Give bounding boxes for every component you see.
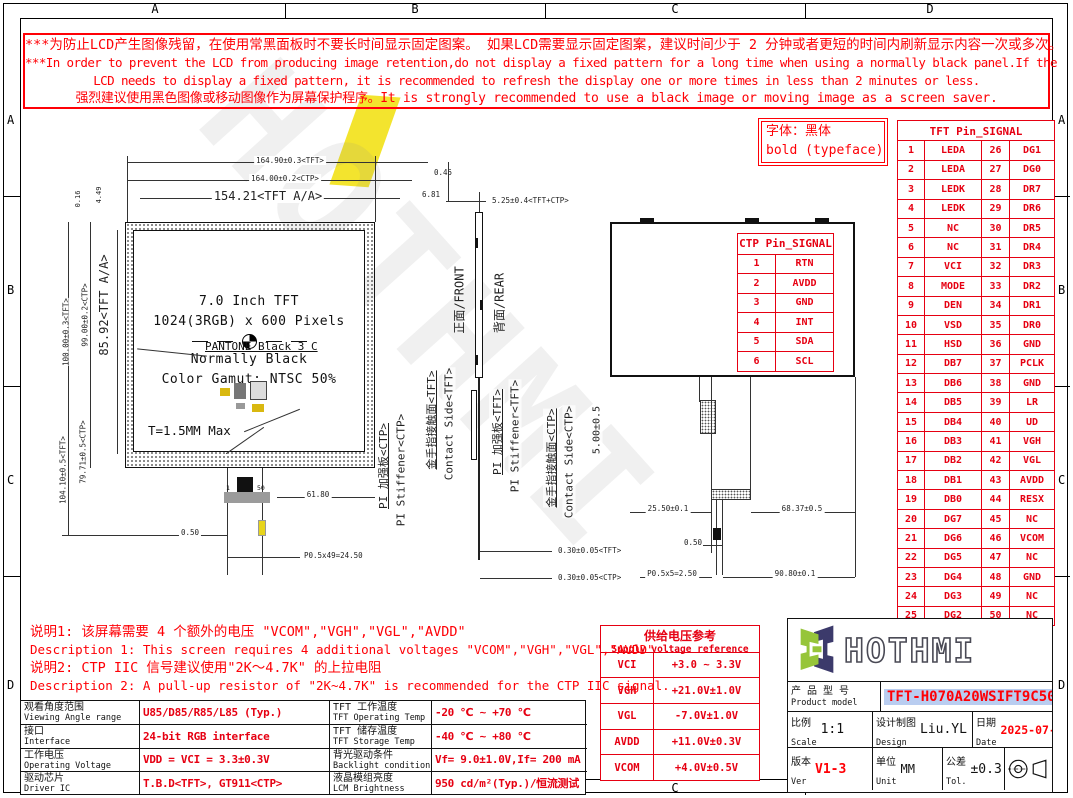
tolerance-label-cn: 公差 xyxy=(946,757,966,768)
pin-number-first: 1 xyxy=(226,484,230,492)
fpc-driver-ic xyxy=(250,381,267,400)
date-label-en: Date xyxy=(976,738,996,748)
zone-letter: A xyxy=(151,2,158,16)
unit-label-cn: 单位 xyxy=(876,757,896,768)
fpc-component xyxy=(220,388,230,396)
dim-label: 6.81 xyxy=(420,190,442,199)
dim-label: 0.45 xyxy=(432,168,454,177)
typeface-note-en: bold (typeface) xyxy=(766,141,884,160)
side-view-stiffener xyxy=(471,390,477,460)
note-1-en: Description 1: This screen requires 4 ad… xyxy=(30,641,670,659)
drawing-sheet: HOTHMI ABCD ABCD ABCD ABCD ***为防止LCD产生图像… xyxy=(0,0,1073,798)
zone-letter: C xyxy=(1058,473,1065,487)
warning-line-en2: LCD needs to display a fixed pattern, it… xyxy=(25,72,1048,90)
panel-size-label: 7.0 Inch TFT xyxy=(199,292,299,312)
dim-label: 68.37±0.5 xyxy=(780,504,825,513)
tolerance-value: ±0.3 xyxy=(970,762,1001,777)
logo-text: HOTHMI xyxy=(844,631,975,670)
side-view-stack xyxy=(475,212,483,378)
zone-letter: D xyxy=(1058,678,1065,692)
date-label-cn: 日期 xyxy=(976,718,996,729)
side-front-label: 正面/FRONT xyxy=(451,266,468,333)
side-label-pi-tft-cn: PI 加强板<TFT> xyxy=(489,389,505,475)
note-1-cn: 说明1: 该屏幕需要 4 个额外的电压 "VCOM","VGH","VGL","… xyxy=(30,623,670,641)
dim-label: 0.30±0.05<CTP> xyxy=(556,573,623,582)
title-block: HOTHMI 产 品 型 号 Product model TFT-H070A20… xyxy=(787,618,1053,793)
tft-pin-table: TFT Pin_SIGNAL 1 LEDA 26 DG1 2 LEDA 27 D… xyxy=(897,120,1055,626)
side-label-contact-ctp-cn: 金手指接触面<CTP> xyxy=(543,408,559,507)
designer-value: Liu.YL xyxy=(920,722,967,737)
dim-label: 164.00±0.2<CTP> xyxy=(249,174,321,183)
dim-label: 79.71±0.5<CTP> xyxy=(79,420,88,483)
dim-label: 61.80 xyxy=(305,490,332,499)
version-label-en: Ver xyxy=(791,777,806,787)
dim-label: 90.80±0.1 xyxy=(773,569,818,578)
ctp-pin-table: CTP Pin_SIGNAL 1 RTN 2 AVDD 3 GND 4 INT … xyxy=(737,233,834,372)
hothmi-logo-icon xyxy=(794,624,840,676)
dim-label: 5.00±0.5 xyxy=(592,406,603,454)
typeface-note-cn: 字体：黑体 xyxy=(766,122,884,141)
dim-label: 100.00±0.3<TFT> xyxy=(62,298,71,366)
dim-label: P0.5x5=2.50 xyxy=(645,569,699,578)
unit-value: MM xyxy=(900,762,914,776)
logo-row: HOTHMI xyxy=(788,619,1052,682)
warning-line-cn: ***为防止LCD产生图像残留，在使用常黑面板时不要长时间显示固定图案。 如果L… xyxy=(25,36,1048,54)
version-value: V1-3 xyxy=(815,762,846,777)
side-label-pi-ctp-cn: PI 加强板<CTP> xyxy=(375,423,391,509)
unit-label-en: Unit xyxy=(876,777,896,787)
zone-letter: B xyxy=(1058,283,1065,297)
fpc-connector xyxy=(224,492,270,503)
side-label-pi-tft-en: PI Stiffener<TFT> xyxy=(509,380,522,493)
panel-gamut-label: Color Gamut: NTSC 50% xyxy=(162,370,337,390)
dim-label: 154.21<TFT A/A> xyxy=(212,189,324,203)
typeface-note-box: 字体：黑体 bold (typeface) xyxy=(758,118,888,166)
product-model-value: TFT-H070A20WSIFT9C50 xyxy=(884,689,1052,705)
date-value: 2025-07-25 xyxy=(1000,723,1052,737)
dim-label: 0.30±0.05<TFT> xyxy=(556,546,623,555)
design-label-en: Design xyxy=(876,738,907,748)
warning-line-mixed: 强烈建议使用黑色图像或移动图像作为屏幕保护程序。It is strongly r… xyxy=(25,90,1048,108)
tft-pin-table-title: TFT Pin_SIGNAL xyxy=(898,121,1054,141)
thickness-label: T=1.5MM Max xyxy=(148,423,231,438)
dim-label: 104.10±0.5<TFT> xyxy=(59,436,68,504)
tolerance-label-en: Tol. xyxy=(946,777,966,787)
ctp-pin-table-title: CTP Pin_SIGNAL xyxy=(738,234,833,253)
side-label-contact-ctp-en: Contact Side<CTP> xyxy=(563,406,576,519)
fpc-component xyxy=(252,404,264,412)
panel-resolution-label: 1024(3RGB) x 600 Pixels xyxy=(153,312,345,332)
product-model-label-en: Product model xyxy=(791,698,858,708)
scale-value: 1:1 xyxy=(821,722,844,737)
pantone-label: PANTONE Black 3 C xyxy=(205,340,318,353)
spec-table: 观看角度范围 Viewing Angle range U85/D85/R85/L… xyxy=(20,700,586,795)
fpc-tail xyxy=(258,520,266,536)
zone-letter: D xyxy=(7,678,14,692)
dim-label: 25.50±0.1 xyxy=(646,504,691,513)
dim-label: 0.16 xyxy=(74,191,82,208)
fpc-component xyxy=(234,383,246,399)
dim-label: 164.90±0.3<TFT> xyxy=(254,156,326,165)
scale-label-cn: 比例 xyxy=(791,718,811,729)
side-label-pi-ctp-en: PI Stiffener<CTP> xyxy=(395,414,408,527)
scale-label-en: Scale xyxy=(791,738,817,748)
zone-letter: A xyxy=(7,113,14,127)
zone-letter: C xyxy=(671,781,678,795)
side-label-contact-tft-en: Contact Side<TFT> xyxy=(443,368,456,481)
zone-letter: B xyxy=(411,2,418,16)
rear-fpc-stiffener xyxy=(700,400,716,434)
zone-letter: C xyxy=(671,2,678,16)
warning-line-en1: ***In order to prevent the LCD from prod… xyxy=(25,54,1048,72)
fpc-pad xyxy=(237,477,253,493)
projection-symbol-icon xyxy=(1008,756,1049,782)
zone-letter: C xyxy=(7,473,14,487)
dim-label: 85.92<TFT A/A> xyxy=(97,254,111,355)
dim-label: 0.50 xyxy=(682,538,704,547)
side-label-contact-tft-cn: 金手指接触面<TFT> xyxy=(423,370,439,469)
panel-mode-label: Normally Black xyxy=(191,350,308,370)
dim-label: P0.5x49=24.50 xyxy=(302,551,365,560)
note-2-en: Description 2: A pull-up resistor of "2K… xyxy=(30,677,670,695)
rear-fpc-bar xyxy=(711,489,751,500)
pin-number-last: 50 xyxy=(257,484,265,492)
version-label-cn: 版本 xyxy=(791,757,811,768)
note-2-cn: 说明2: CTP IIC 信号建议使用"2K～4.7K" 的上拉电阻 xyxy=(30,659,670,677)
product-model-label-cn: 产 品 型 号 xyxy=(791,686,849,698)
dim-label: 4.49 xyxy=(95,187,103,204)
dim-label: 0.50 xyxy=(179,528,201,537)
zone-letter: D xyxy=(926,2,933,16)
side-rear-label: 背面/REAR xyxy=(491,273,508,333)
description-notes: 说明1: 该屏幕需要 4 个额外的电压 "VCOM","VGH","VGL","… xyxy=(30,623,670,695)
lcd-retention-warning: ***为防止LCD产生图像残留，在使用常黑面板时不要长时间显示固定图案。 如果L… xyxy=(23,33,1050,109)
zone-letter: A xyxy=(1058,113,1065,127)
dim-label: 99.00±0.2<CTP> xyxy=(81,283,90,346)
fpc-component xyxy=(236,403,245,409)
zone-letter: B xyxy=(7,283,14,297)
design-label-cn: 设计制图 xyxy=(876,718,916,729)
dim-label: 5.25±0.4<TFT+CTP> xyxy=(490,196,571,205)
